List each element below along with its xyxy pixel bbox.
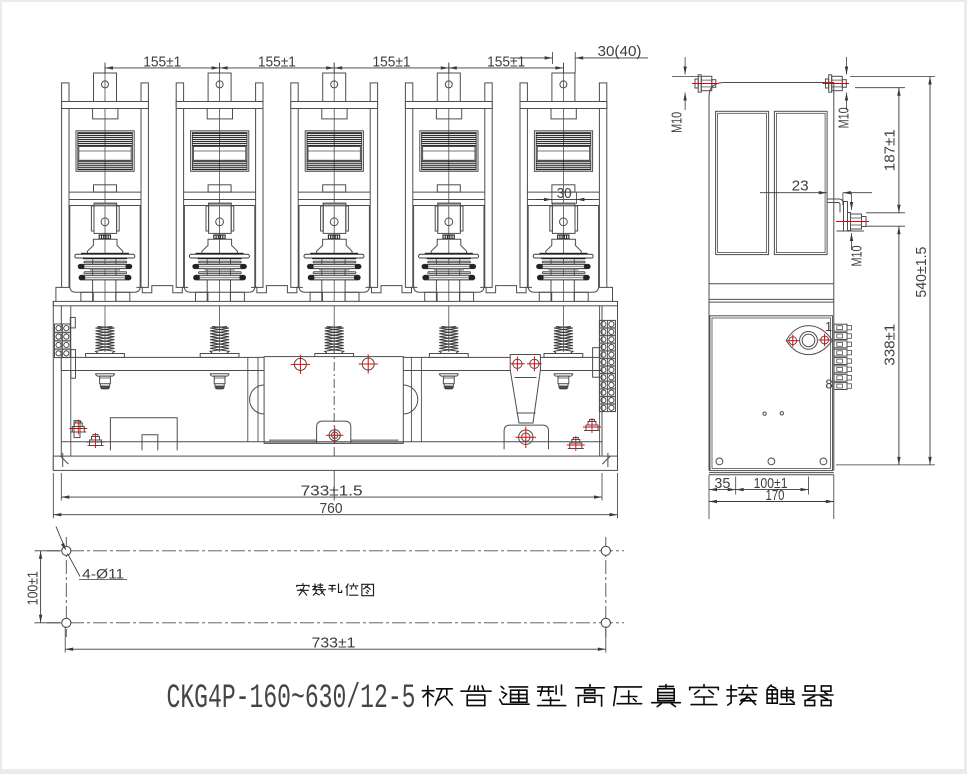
svg-text:155±1: 155±1: [258, 53, 296, 70]
svg-text:170: 170: [766, 487, 785, 504]
svg-text:M10: M10: [669, 112, 686, 133]
svg-text:M10: M10: [849, 246, 866, 267]
svg-text:187±1: 187±1: [882, 129, 899, 171]
svg-text:23: 23: [792, 178, 809, 195]
svg-text:35: 35: [714, 475, 730, 492]
svg-text:CKG4P-160~630/12-5: CKG4P-160~630/12-5: [167, 680, 416, 718]
svg-text:540±1.5: 540±1.5: [913, 247, 930, 298]
svg-text:M10: M10: [836, 107, 853, 128]
svg-text:733±1: 733±1: [312, 634, 356, 651]
svg-text:30(40): 30(40): [598, 43, 642, 60]
svg-text:338±1: 338±1: [882, 324, 899, 366]
svg-text:1: 1: [825, 319, 832, 334]
svg-text:8: 8: [825, 377, 832, 392]
svg-text:155±1: 155±1: [373, 53, 411, 70]
svg-text:760: 760: [320, 500, 343, 517]
svg-text:733±1.5: 733±1.5: [301, 482, 363, 499]
svg-text:100±1: 100±1: [24, 571, 41, 605]
svg-text:155±1: 155±1: [487, 53, 525, 70]
svg-text:30: 30: [557, 185, 572, 202]
svg-text:155±1: 155±1: [143, 53, 181, 70]
